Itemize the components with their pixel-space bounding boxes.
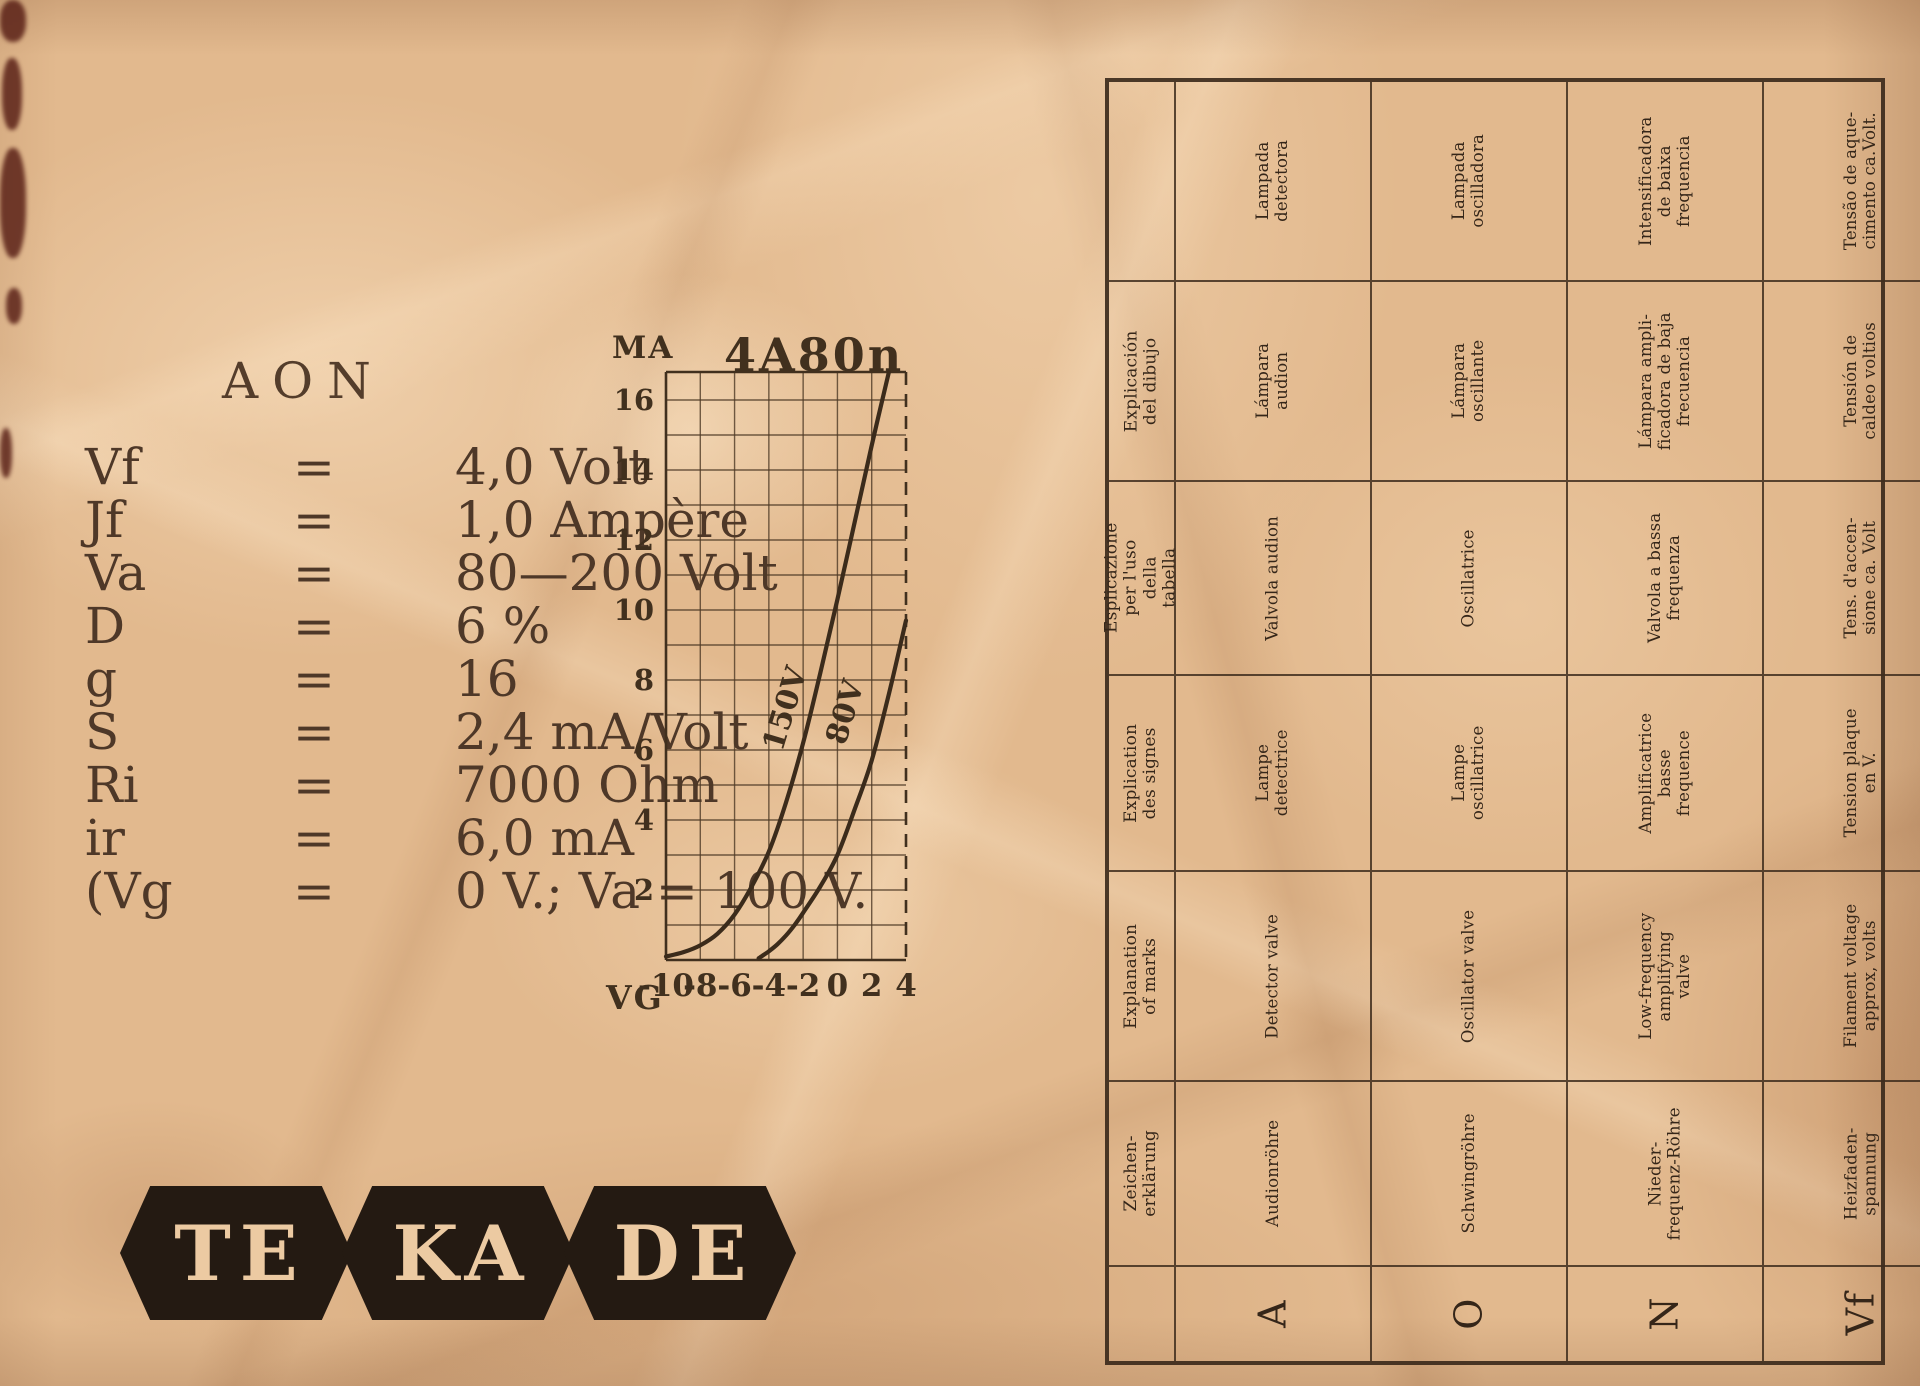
curve-label-80V: 80V [819,675,872,748]
language-header-cell: Explicación del dibujo [1109,282,1176,482]
term-cell: Valvola a bassa frequenza [1568,482,1764,676]
y-tick-label: 16 [614,383,654,417]
spec-sym: S [85,703,293,761]
page-edge-mark [0,0,26,42]
cell-text: Detector valve [1264,879,1283,1073]
y-tick-label: 8 [634,663,654,697]
y-tick-label: 6 [634,733,654,767]
cell-text: Heizfaden- spannung [1842,1089,1880,1258]
cell-text: Explication des signes [1122,723,1161,822]
term-cell: Tensão de aque- cimento ca.Volt. [1764,82,1920,282]
translation-table: Lampada detectoraLampada oscilladoraInte… [1105,78,1885,1365]
cell-text: Lampe detectrice [1254,683,1292,863]
page-edge-mark [2,58,22,130]
tube-type-title: AON [222,352,385,410]
cell-text: Lámpara ampli- ficadora de baja frecuenc… [1637,289,1693,473]
language-header-cell: Explication des signes [1109,676,1176,872]
language-header-cell [1109,82,1176,282]
x-tick-label: 2 [861,968,883,1004]
spec-sym: (Vg [85,862,293,920]
cell-text: Amplificatrice basse frequence [1637,683,1693,863]
term-cell: Oscillator valve [1372,872,1568,1082]
characteristic-curves-chart: 246810121416-10-8-6-4-2024150V80V [596,330,926,1030]
y-tick-label: 12 [614,523,654,557]
language-header-cell: Esplicazione per l'uso della tabella [1109,482,1176,676]
cell-text: Vf [1839,1275,1882,1353]
cell-text: Filament voltage approx, volts [1842,879,1880,1073]
term-cell: Detector valve [1176,872,1372,1082]
term-cell: Schwingröhre [1372,1082,1568,1267]
term-cell: Intensificadora de baixa frequencia [1568,82,1764,282]
cell-text: Lampada detectora [1254,89,1292,273]
term-cell: Lámpara ampli- ficadora de baja frecuenc… [1568,282,1764,482]
term-cell: Tension plaque en V. [1764,676,1920,872]
cell-text: Audionröhre [1264,1089,1283,1258]
y-tick-label: 10 [614,593,654,627]
cell-text: N [1643,1275,1686,1353]
term-cell: Lámpara oscillante [1372,282,1568,482]
term-cell: Lampe detectrice [1176,676,1372,872]
spec-eq: = [293,597,455,655]
symbol-cell: Vf [1764,1267,1920,1361]
spec-eq: = [293,862,455,920]
term-cell: Lampe oscillatrice [1372,676,1568,872]
cell-text: A [1251,1275,1294,1353]
y-tick-label: 4 [634,803,654,837]
term-cell: Lampada oscilladora [1372,82,1568,282]
x-tick-label: 0 [827,968,849,1004]
spec-sym: Jf [85,491,293,549]
term-cell: Oscillatrice [1372,482,1568,676]
term-cell: Lámpara audion [1176,282,1372,482]
term-cell: Lampada detectora [1176,82,1372,282]
logo-hexagon: KA [342,1186,574,1320]
language-header-cell: Zeichen- erklärung [1109,1082,1176,1267]
term-cell: Heizfaden- spannung [1764,1082,1920,1267]
language-header-cell: Explanation of marks [1109,872,1176,1082]
spec-sym: Va [85,544,293,602]
cell-text: Esplicazione per l'uso della tabella [1103,523,1181,634]
spec-sym: Ri [85,756,293,814]
cell-text: Low-frequency amplifying valve [1637,879,1693,1073]
y-tick-label: 2 [634,873,654,907]
term-cell: Filament voltage approx, volts [1764,872,1920,1082]
x-tick-label: -6 [717,968,751,1004]
curve-label-150V: 150V [756,662,815,755]
spec-eq: = [293,650,455,708]
cell-text: Nieder- frequenz-Röhre [1646,1089,1684,1258]
spec-eq: = [293,809,455,867]
spec-eq: = [293,544,455,602]
spec-sym: D [85,597,293,655]
cell-text: Valvola audion [1264,489,1283,667]
logo-letters: DE [605,1209,756,1298]
spec-eq: = [293,756,455,814]
logo-letters: TE [165,1209,306,1298]
cell-text: Lámpara oscillante [1450,289,1488,473]
x-tick-label: -8 [683,968,717,1004]
term-cell: Tens. d'accen- sione ca. Volt [1764,482,1920,676]
cell-text: Zeichen- erklärung [1122,1130,1161,1217]
spec-sym: g [85,650,293,708]
cell-text: Lámpara audion [1254,289,1292,473]
cell-text: Explanation of marks [1122,923,1161,1028]
spec-eq: = [293,703,455,761]
cell-text: Intensificadora de baixa frequencia [1637,89,1693,273]
spec-eq: = [293,491,455,549]
page-edge-mark [0,428,12,478]
symbol-cell: A [1176,1267,1372,1361]
x-tick-label: -2 [786,968,820,1004]
cell-text: Oscillatrice [1460,489,1479,667]
spec-eq: = [293,438,455,496]
cell-text: Tens. d'accen- sione ca. Volt [1842,489,1880,667]
cell-text: Lampada oscilladora [1450,89,1488,273]
page-edge-mark [0,148,26,258]
cell-text: Oscillator valve [1460,879,1479,1073]
datasheet-page: AON Vf=4,0 VoltJf=1,0 AmpèreVa=80—200 Vo… [0,0,1920,1386]
spec-sym: ir [85,809,293,867]
cell-text: Tensión de caldeo voltios [1842,289,1880,473]
cell-text: Lampe oscillatrice [1450,683,1488,863]
term-cell: Audionröhre [1176,1082,1372,1267]
symbol-header-cell [1109,1267,1176,1361]
term-cell: Amplificatrice basse frequence [1568,676,1764,872]
curve-150V [666,372,889,957]
spec-sym: Vf [85,438,293,496]
cell-text: Tensão de aque- cimento ca.Volt. [1842,89,1880,273]
y-tick-label: 14 [614,453,654,487]
symbol-cell: O [1372,1267,1568,1361]
symbol-cell: N [1568,1267,1764,1361]
cell-text: Explicación del dibujo [1122,330,1161,432]
cell-text: O [1447,1275,1490,1353]
cell-text: Tension plaque en V. [1842,683,1880,863]
x-tick-label: -4 [752,968,786,1004]
term-cell: Nieder- frequenz-Röhre [1568,1082,1764,1267]
term-cell: Low-frequency amplifying valve [1568,872,1764,1082]
cell-text: Valvola a bassa frequenza [1646,489,1684,667]
term-cell: Valvola audion [1176,482,1372,676]
term-cell: Tensión de caldeo voltios [1764,282,1920,482]
logo-hexagon: DE [564,1186,796,1320]
logo-letters: KA [384,1209,533,1298]
tekade-logo: TEKADE [120,1186,786,1320]
logo-hexagon: TE [120,1186,352,1320]
x-tick-label: 4 [895,968,917,1004]
cell-text: Schwingröhre [1460,1089,1479,1258]
page-edge-mark [6,288,22,324]
